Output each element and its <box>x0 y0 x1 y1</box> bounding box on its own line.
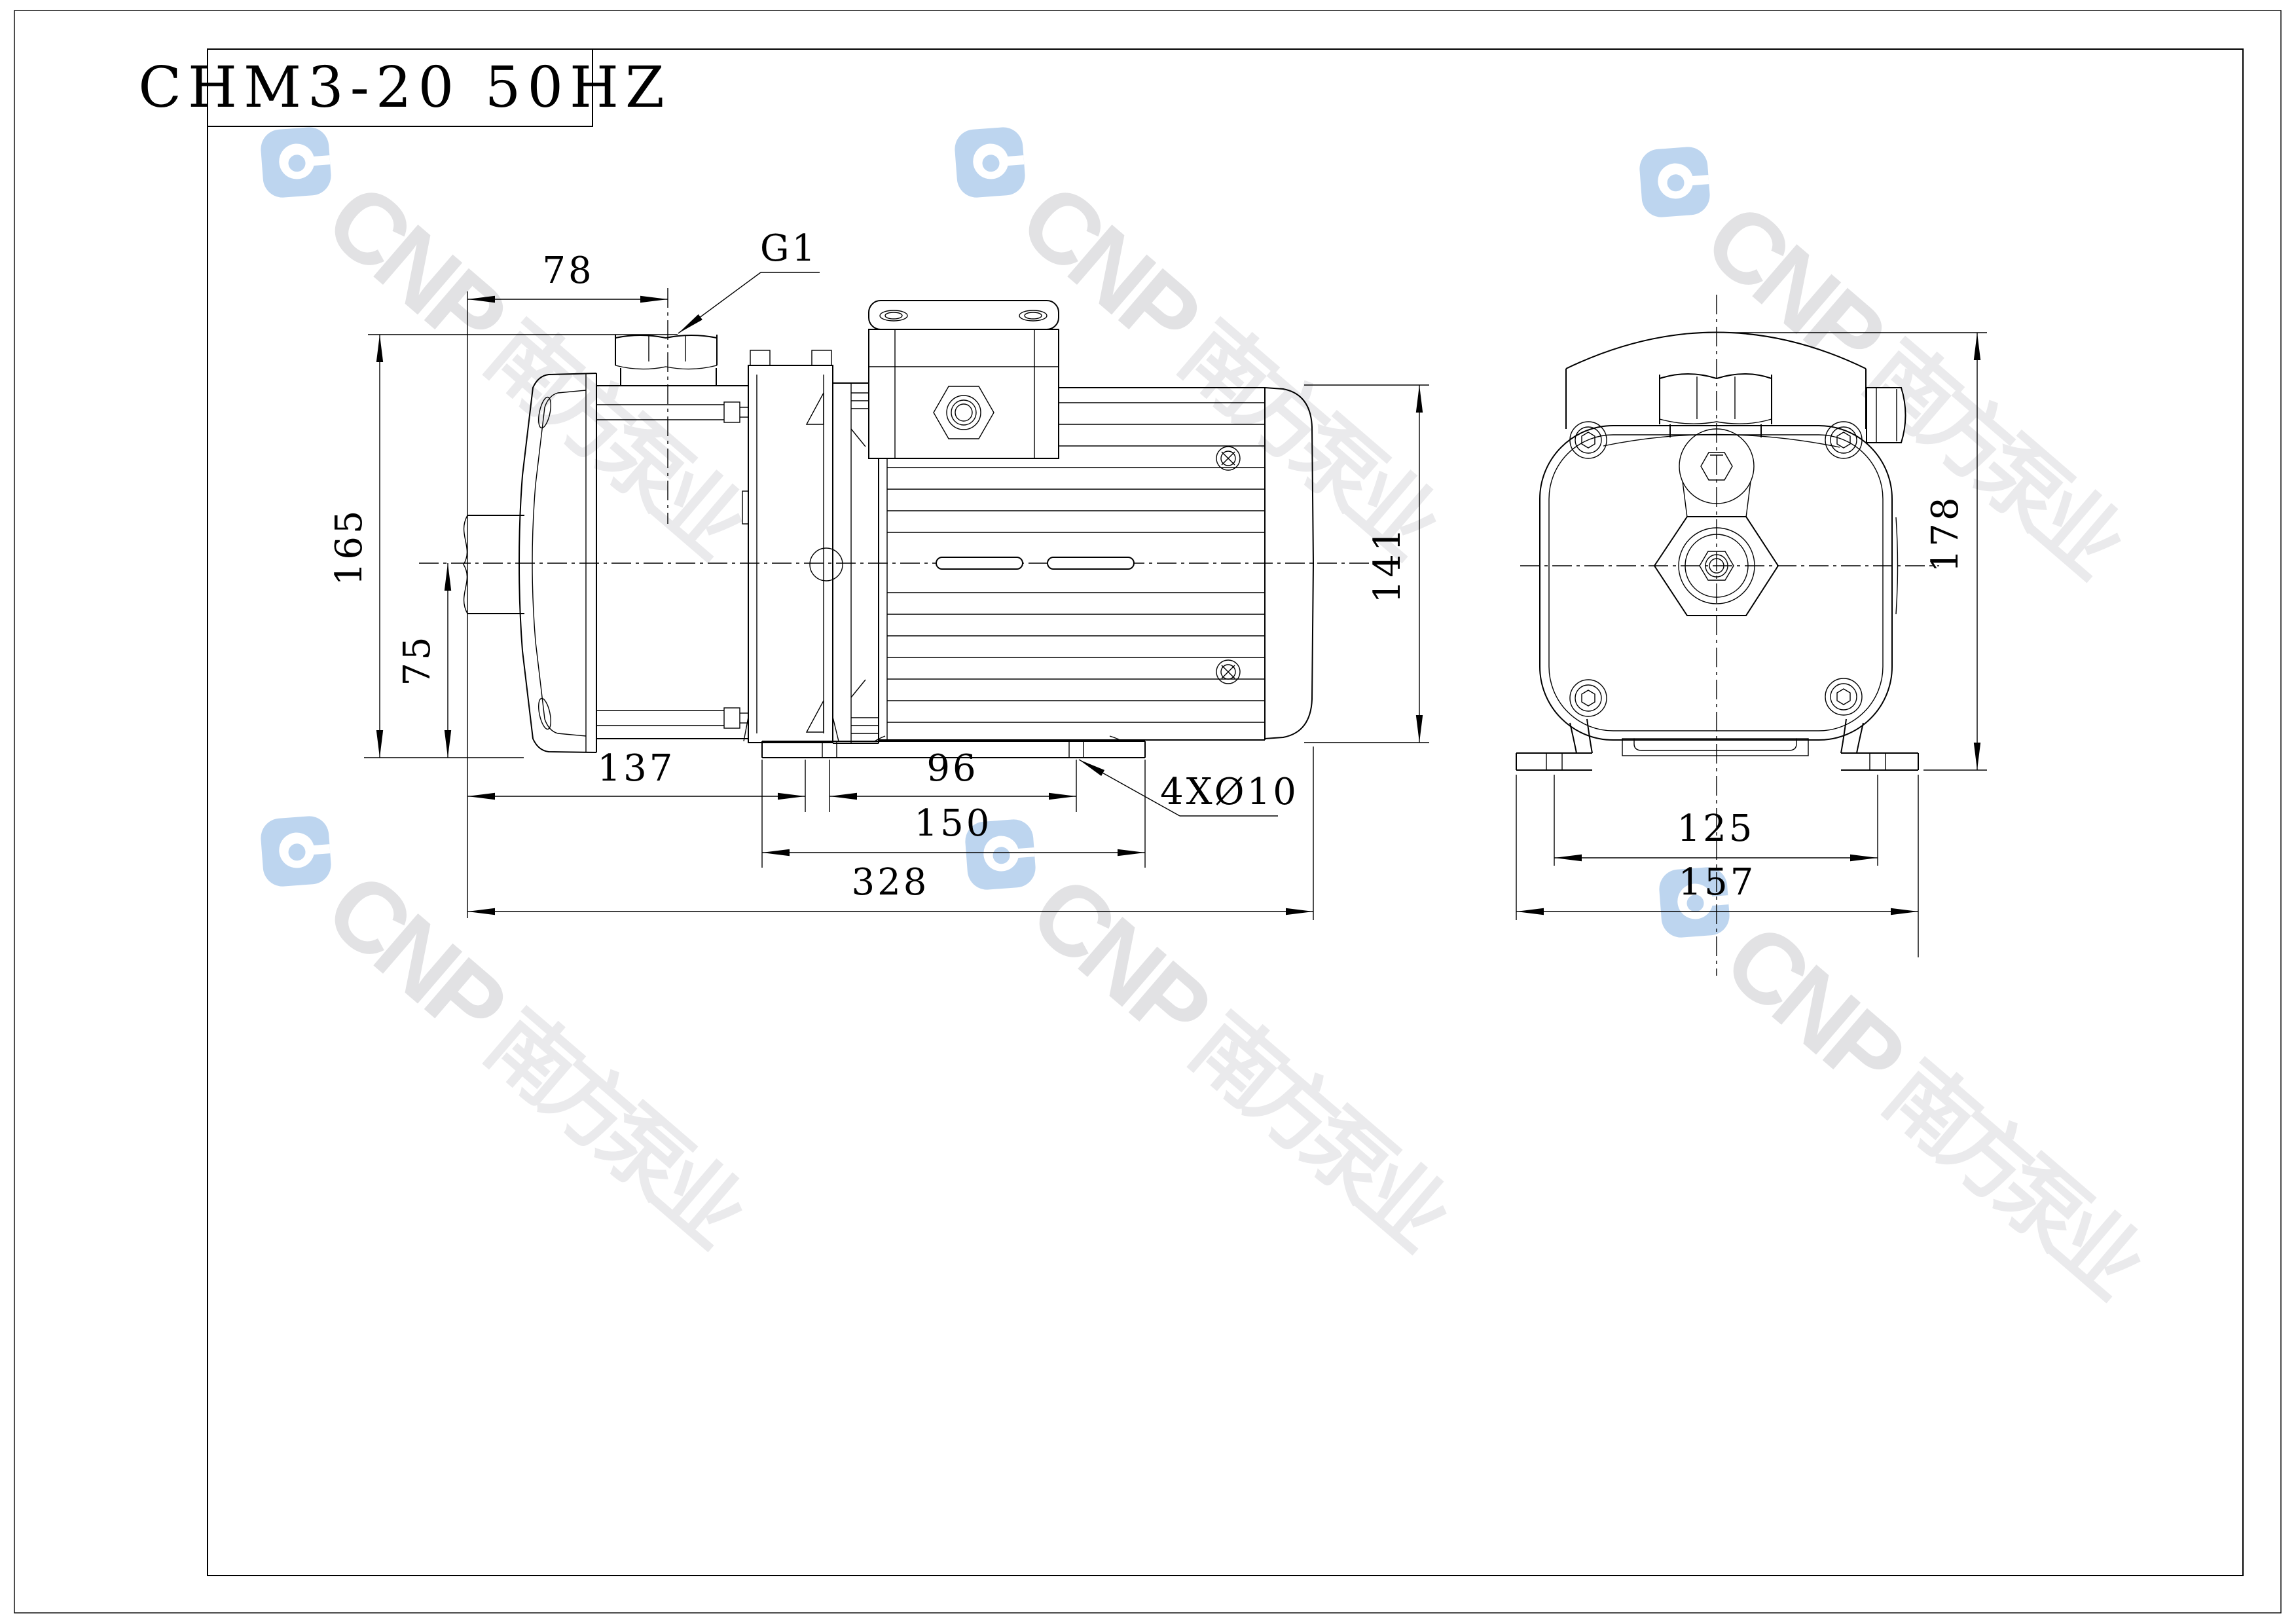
dim-motor-diameter: 141 <box>1366 526 1409 604</box>
cable-gland <box>1867 388 1906 443</box>
drawing-page: C N P 南 方 泵 业 CHM3-20 50HZ <box>0 0 2296 1624</box>
dim-suction-offset: 78 <box>542 249 594 292</box>
vent-slot <box>936 557 1023 569</box>
dim-pump-length: 137 <box>598 747 676 790</box>
shaft-stub <box>464 515 524 614</box>
end-cap-screw <box>1216 447 1240 470</box>
terminal-box <box>869 301 1059 458</box>
page-title: CHM3-20 50HZ <box>138 55 671 120</box>
dim-foot-bolt-span: 96 <box>926 747 978 790</box>
end-view-feet <box>1516 719 1918 770</box>
end-cap-screw <box>1216 660 1240 684</box>
title-block: CHM3-20 50HZ <box>138 49 671 126</box>
dim-end-base-width: 157 <box>1679 861 1757 904</box>
vent-slot <box>1048 557 1134 569</box>
suction-port <box>615 335 717 386</box>
suction-port-front <box>1660 374 1772 437</box>
watermark-layer <box>222 90 2167 1323</box>
pump-head <box>742 350 843 743</box>
dim-total-height: 165 <box>328 508 371 586</box>
dim-total-length: 328 <box>852 861 930 904</box>
dim-suction-thread: G1 <box>760 227 818 270</box>
dim-base-length: 150 <box>915 802 993 845</box>
dim-end-bolt-span: 125 <box>1677 807 1755 850</box>
dim-end-total-height: 178 <box>1924 495 1967 573</box>
dim-centerline-height: 75 <box>396 634 439 686</box>
cover-screws <box>1570 422 1862 716</box>
dim-base-holes: 4XØ10 <box>1160 771 1299 813</box>
